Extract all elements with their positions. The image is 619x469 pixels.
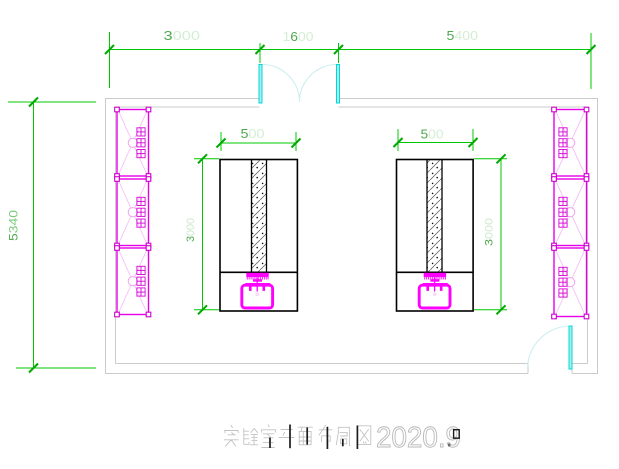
svg-text:1600: 1600 (283, 29, 314, 44)
svg-text:3000: 3000 (185, 218, 197, 242)
svg-text:3000: 3000 (164, 28, 201, 43)
svg-text:5340: 5340 (7, 210, 21, 241)
svg-text:5400: 5400 (447, 28, 479, 43)
svg-text:500: 500 (241, 126, 265, 141)
svg-text:500: 500 (421, 127, 444, 142)
svg-text:2020.9: 2020.9 (376, 422, 461, 454)
svg-text:3000: 3000 (484, 218, 496, 246)
